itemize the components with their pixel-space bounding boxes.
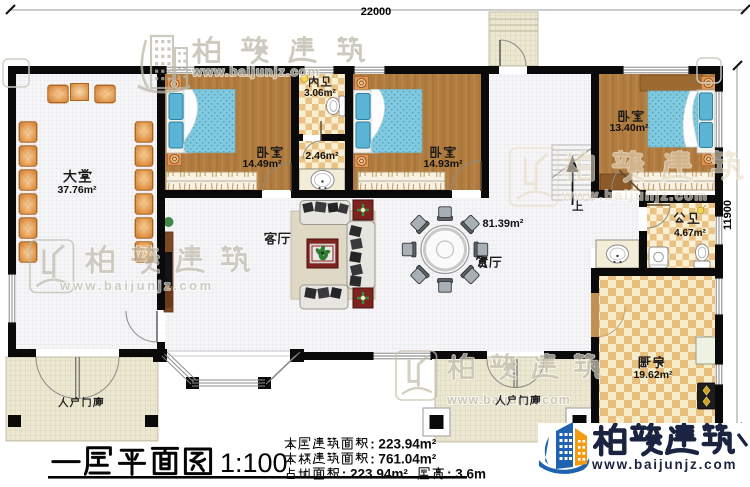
svg-text:www.baijunjz.com: www.baijunjz.com bbox=[591, 457, 737, 472]
svg-text:4.67m²: 4.67m² bbox=[674, 228, 706, 239]
svg-text:14.49m²: 14.49m² bbox=[242, 158, 282, 170]
svg-text:37.76m²: 37.76m² bbox=[57, 184, 97, 196]
svg-text:13.40m²: 13.40m² bbox=[609, 122, 649, 134]
svg-text:www.baijunjz.com: www.baijunjz.com bbox=[446, 393, 571, 407]
svg-text:: 761.04m²: : 761.04m² bbox=[370, 452, 437, 467]
svg-text:: 223.94m²: : 223.94m² bbox=[342, 467, 409, 482]
svg-text:: 223.94m²: : 223.94m² bbox=[370, 437, 437, 452]
svg-text:2.46m²: 2.46m² bbox=[305, 150, 339, 162]
svg-text:1:100: 1:100 bbox=[220, 448, 288, 478]
svg-text:14.93m²: 14.93m² bbox=[423, 158, 463, 170]
svg-text:11900: 11900 bbox=[722, 200, 734, 230]
svg-text:81.39m²: 81.39m² bbox=[483, 218, 524, 230]
svg-text:: 3.6m: : 3.6m bbox=[447, 467, 486, 482]
svg-text:www.baijunjz.com: www.baijunjz.com bbox=[191, 64, 320, 79]
svg-text:19.62m²: 19.62m² bbox=[633, 369, 673, 381]
svg-text:3.06m²: 3.06m² bbox=[304, 88, 336, 99]
svg-text:www.baijunjz.com: www.baijunjz.com bbox=[59, 278, 214, 293]
svg-text:www.baijunjz.com: www.baijunjz.com bbox=[561, 187, 708, 203]
svg-text:22000: 22000 bbox=[361, 6, 392, 18]
